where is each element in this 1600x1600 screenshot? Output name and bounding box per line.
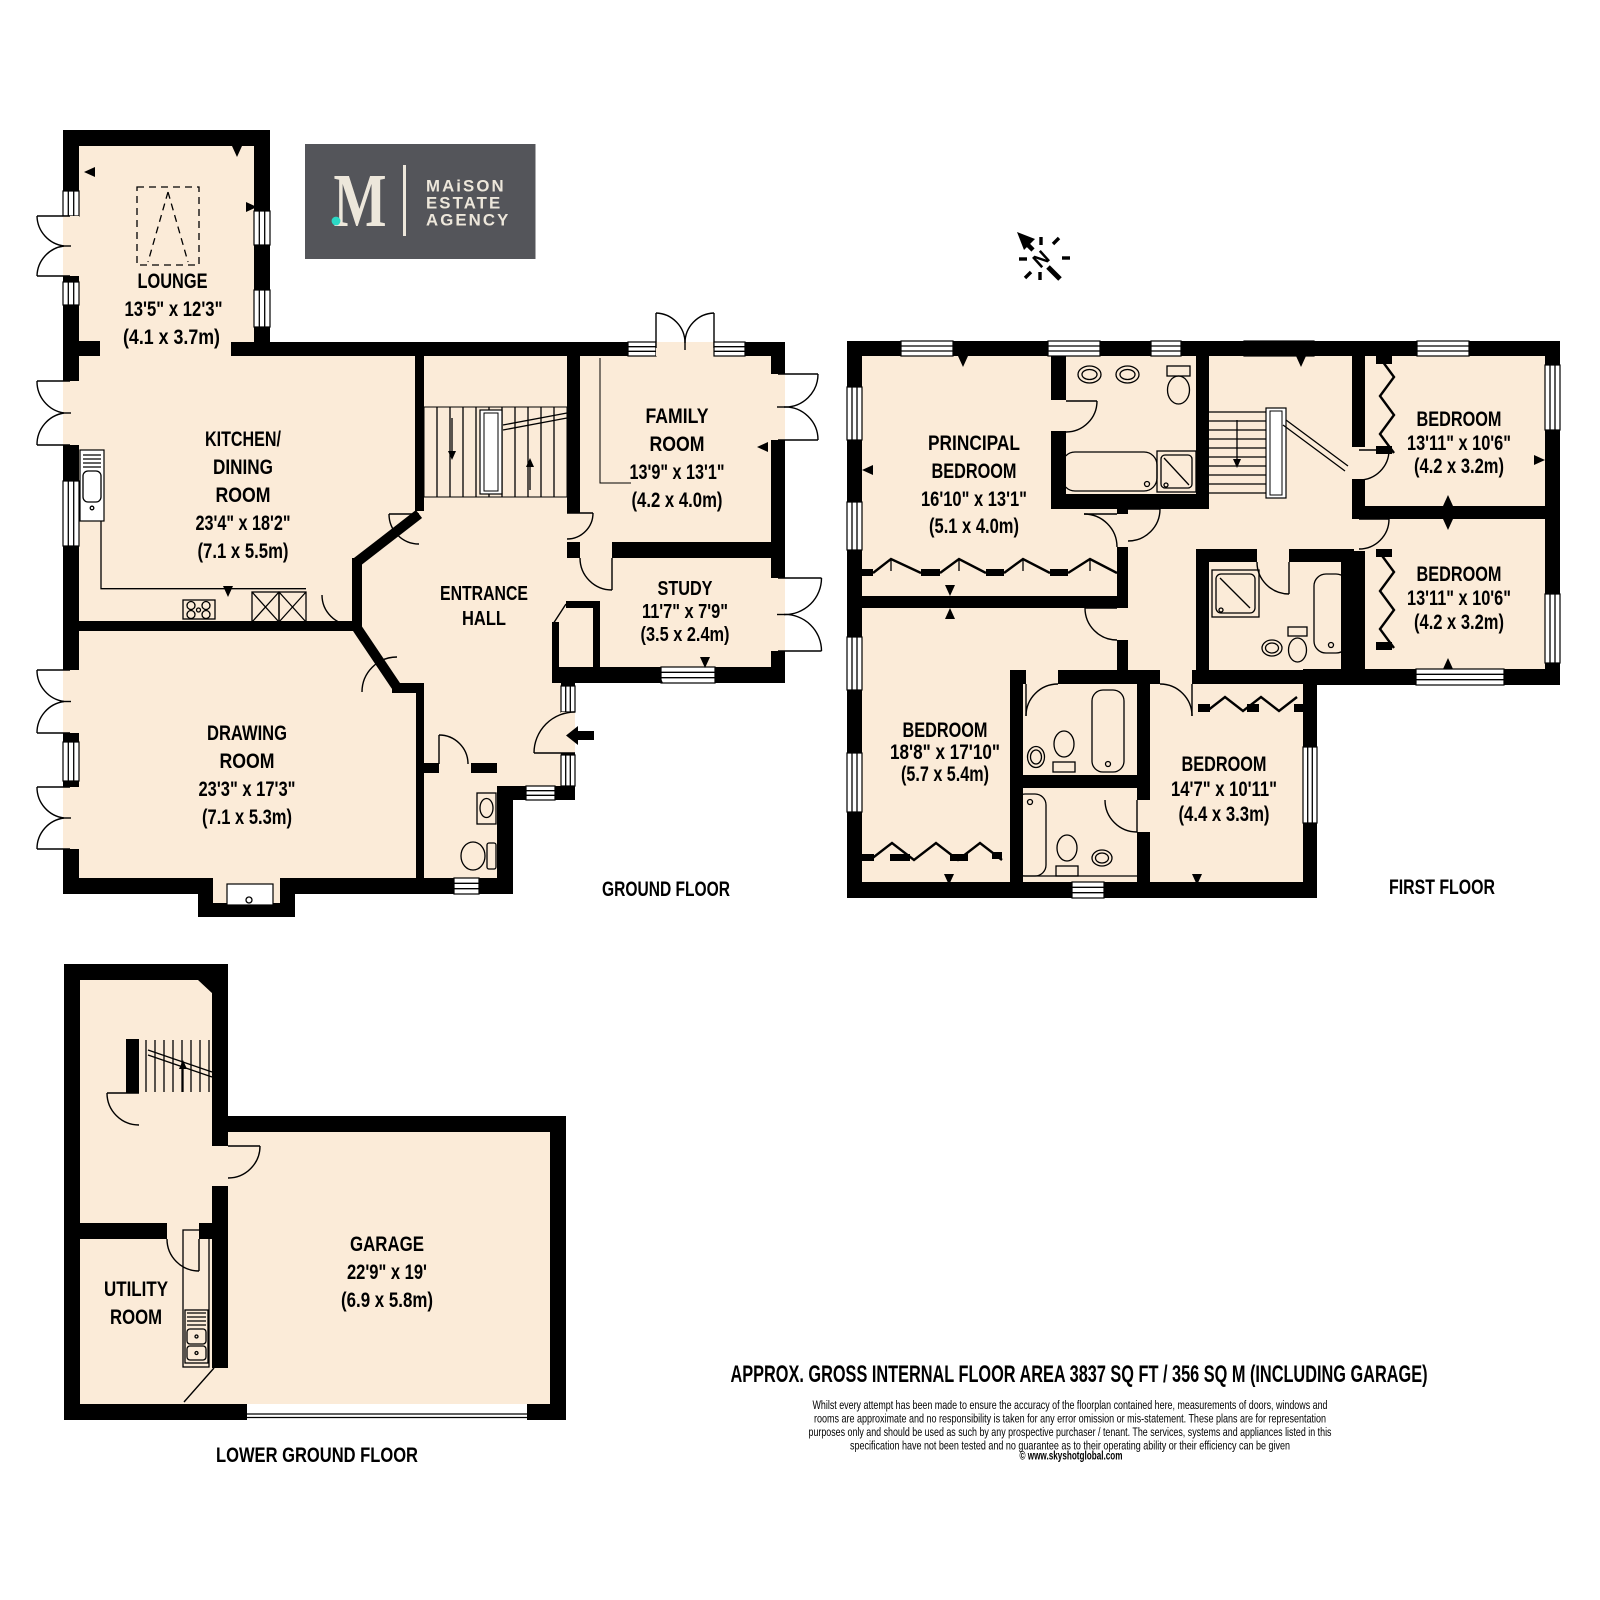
svg-text:(4.2 x 3.2m): (4.2 x 3.2m) xyxy=(1414,455,1504,478)
svg-text:ROOM: ROOM xyxy=(650,433,705,456)
svg-text:APPROX. GROSS INTERNAL FLOOR A: APPROX. GROSS INTERNAL FLOOR AREA 3837 S… xyxy=(731,1361,1428,1388)
svg-text:PRINCIPAL: PRINCIPAL xyxy=(928,432,1020,455)
svg-text:FAMILY: FAMILY xyxy=(646,405,709,428)
svg-text:LOUNGE: LOUNGE xyxy=(138,270,208,293)
svg-text:LOWER GROUND FLOOR: LOWER GROUND FLOOR xyxy=(216,1444,418,1467)
svg-text:ROOM: ROOM xyxy=(216,484,271,507)
svg-text:BEDROOM: BEDROOM xyxy=(1417,563,1502,586)
svg-text:22'9" x 19': 22'9" x 19' xyxy=(347,1261,427,1284)
svg-text:(6.9 x 5.8m): (6.9 x 5.8m) xyxy=(341,1289,433,1312)
svg-text:BEDROOM: BEDROOM xyxy=(903,719,988,742)
svg-text:purposes only and should be u: purposes only and should be used as such… xyxy=(809,1425,1332,1439)
svg-text:BEDROOM: BEDROOM xyxy=(932,460,1017,483)
svg-text:STUDY: STUDY xyxy=(658,578,714,600)
svg-text:KITCHEN/: KITCHEN/ xyxy=(205,428,281,451)
svg-text:(7.1 x 5.3m): (7.1 x 5.3m) xyxy=(202,806,292,829)
svg-text:BEDROOM: BEDROOM xyxy=(1417,408,1502,431)
svg-text:(4.2 x 3.2m): (4.2 x 3.2m) xyxy=(1414,611,1504,634)
svg-text:AGENCY: AGENCY xyxy=(426,210,510,229)
svg-text:(4.2 x 4.0m): (4.2 x 4.0m) xyxy=(632,489,723,512)
svg-text:13'9" x 13'1": 13'9" x 13'1" xyxy=(630,461,725,484)
svg-text:BEDROOM: BEDROOM xyxy=(1182,753,1267,776)
svg-text:13'11" x 10'6": 13'11" x 10'6" xyxy=(1407,432,1511,455)
svg-text:UTILITY: UTILITY xyxy=(104,1278,168,1301)
svg-text:11'7" x 7'9": 11'7" x 7'9" xyxy=(642,601,728,623)
svg-text:HALL: HALL xyxy=(462,608,506,630)
svg-text:(4.1 x 3.7m): (4.1 x 3.7m) xyxy=(123,326,220,349)
svg-text:© www.skyshotglobal.com: © www.skyshotglobal.com xyxy=(1020,1451,1123,1463)
svg-text:ENTRANCE: ENTRANCE xyxy=(440,583,528,605)
svg-text:(4.4 x 3.3m): (4.4 x 3.3m) xyxy=(1179,803,1270,826)
svg-text:M: M xyxy=(334,159,387,243)
svg-text:13'5" x 12'3": 13'5" x 12'3" xyxy=(125,298,223,321)
svg-text:(3.5 x 2.4m): (3.5 x 2.4m) xyxy=(641,624,730,646)
svg-text:ROOM: ROOM xyxy=(110,1306,162,1329)
svg-text:(5.1 x 4.0m): (5.1 x 4.0m) xyxy=(929,515,1019,538)
svg-text:14'7" x 10'11": 14'7" x 10'11" xyxy=(1171,778,1277,801)
svg-text:FIRST FLOOR: FIRST FLOOR xyxy=(1389,876,1495,899)
svg-text:(7.1 x 5.5m): (7.1 x 5.5m) xyxy=(198,540,289,563)
svg-text:23'3" x 17'3": 23'3" x 17'3" xyxy=(199,778,296,801)
svg-text:ROOM: ROOM xyxy=(220,750,275,773)
svg-text:13'11" x 10'6": 13'11" x 10'6" xyxy=(1407,587,1511,610)
svg-text:DINING: DINING xyxy=(213,456,273,479)
svg-text:16'10" x 13'1": 16'10" x 13'1" xyxy=(921,488,1027,511)
svg-text:GARAGE: GARAGE xyxy=(350,1233,424,1256)
svg-text:Whilst every attempt has been: Whilst every attempt has been made to en… xyxy=(813,1398,1328,1412)
svg-text:23'4" x 18'2": 23'4" x 18'2" xyxy=(196,512,291,535)
svg-text:rooms are approximate and no r: rooms are approximate and no responsibil… xyxy=(814,1412,1326,1426)
svg-text:(5.7 x 5.4m): (5.7 x 5.4m) xyxy=(901,763,989,786)
svg-text:18'8" x 17'10": 18'8" x 17'10" xyxy=(890,741,1000,764)
svg-text:GROUND FLOOR: GROUND FLOOR xyxy=(602,878,730,901)
svg-text:DRAWING: DRAWING xyxy=(207,722,287,745)
